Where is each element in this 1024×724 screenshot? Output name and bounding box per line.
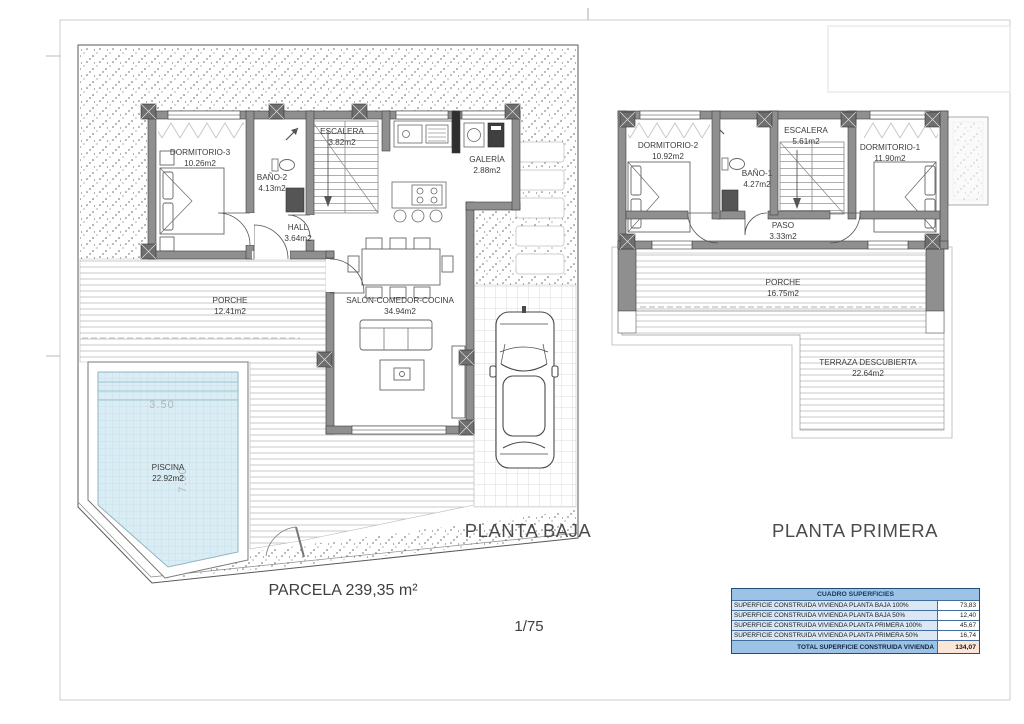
first-floor-plan: DORMITORIO-2 10.92m2 BAÑO-1 4.27m2 ESCAL…: [612, 111, 988, 438]
room-name-dormitorio-3: DORMITORIO-3: [170, 148, 231, 157]
room-name-hall: HALL: [288, 223, 309, 232]
room-name-salon: SALÓN-COMEDOR-COCINA: [346, 295, 454, 305]
room-area-paso: 3.33m2: [769, 232, 797, 241]
coffee-table: [380, 360, 424, 390]
room-area-escalera-gf: 3.82m2: [328, 138, 356, 147]
sofa: [360, 320, 432, 350]
ground-floor-plan: 3.50 7.00: [78, 45, 578, 583]
room-name-terraza: TERRAZA DESCUBIERTA: [819, 358, 917, 367]
table-total-row: TOTAL SUPERFICIE CONSTRUIDA VIVIENDA 134…: [732, 640, 979, 653]
galeria-appliances: [464, 123, 504, 147]
room-area-salon: 34.94m2: [384, 307, 416, 316]
balcony: [948, 117, 988, 205]
total-value: 134,07: [937, 641, 979, 653]
room-name-escalera-gf: ESCALERA: [320, 127, 364, 136]
table-row: SUPERFICIE CONSTRUIDA VIVIENDA PLANTA BA…: [732, 600, 979, 610]
kitchen-island: [392, 182, 446, 222]
row-label: SUPERFICIE CONSTRUIDA VIVIENDA PLANTA BA…: [732, 611, 937, 620]
walkway-slabs: [516, 142, 564, 274]
surfaces-table: CUADRO SUPERFICIES SUPERFICIE CONSTRUIDA…: [731, 588, 980, 654]
first-floor-title: PLANTA PRIMERA: [755, 520, 955, 542]
table-row: SUPERFICIE CONSTRUIDA VIVIENDA PLANTA PR…: [732, 620, 979, 630]
wardrobe-dormitorio-3: [158, 121, 244, 142]
room-name-porche-ff: PORCHE: [765, 278, 801, 287]
row-value: 12,40: [937, 611, 979, 620]
room-name-galeria: GALERÍA: [469, 154, 505, 164]
car-icon: [490, 306, 558, 468]
row-label: SUPERFICIE CONSTRUIDA VIVIENDA PLANTA BA…: [732, 601, 937, 610]
room-area-terraza: 22.64m2: [852, 369, 884, 378]
row-label: SUPERFICIE CONSTRUIDA VIVIENDA PLANTA PR…: [732, 621, 937, 630]
row-value: 16,74: [937, 631, 979, 640]
room-area-escalera-ff: 5.61m2: [792, 137, 820, 146]
room-area-galeria: 2.88m2: [473, 166, 501, 175]
room-area-porche-ff: 16.75m2: [767, 289, 799, 298]
room-name-paso: PASO: [772, 221, 794, 230]
bed-dormitorio-2: [628, 162, 690, 232]
table-row: SUPERFICIE CONSTRUIDA VIVIENDA PLANTA PR…: [732, 630, 979, 640]
room-area-dormitorio-1: 11.90m2: [874, 154, 906, 163]
room-name-bano-1: BAÑO-1: [742, 168, 773, 178]
title-block-placeholder: [828, 26, 1010, 92]
kitchen-counter: [394, 121, 452, 147]
garden-gravel-top: [80, 47, 576, 113]
room-name-escalera-ff: ESCALERA: [784, 126, 828, 135]
room-area-dormitorio-2: 10.92m2: [652, 152, 684, 161]
table-row: SUPERFICIE CONSTRUIDA VIVIENDA PLANTA BA…: [732, 610, 979, 620]
drawing-sheet: 3.50 7.00: [0, 0, 1024, 724]
room-name-dormitorio-2: DORMITORIO-2: [638, 141, 699, 150]
ground-floor-title: PLANTA BAJA: [428, 520, 628, 542]
room-area-dormitorio-3: 10.26m2: [184, 159, 216, 168]
row-label: SUPERFICIE CONSTRUIDA VIVIENDA PLANTA PR…: [732, 631, 937, 640]
wardrobe-dormitorio-2: [628, 121, 710, 142]
room-name-piscina: PISCINA: [152, 463, 185, 472]
room-area-porche-gf: 12.41m2: [214, 307, 246, 316]
row-value: 45,67: [937, 621, 979, 630]
room-area-piscina: 22.92m2: [152, 474, 184, 483]
room-name-bano-2: BAÑO-2: [257, 172, 288, 182]
drawing-scale: 1/75: [479, 618, 579, 635]
parcel-area-label: PARCELA 239,35 m²: [233, 582, 453, 600]
surfaces-table-title: CUADRO SUPERFICIES: [732, 589, 979, 600]
room-name-dormitorio-1: DORMITORIO-1: [860, 143, 921, 152]
pool-width-dim: 3.50: [149, 399, 174, 411]
room-name-porche-gf: PORCHE: [212, 296, 248, 305]
terraza-descubierta: [622, 311, 944, 430]
total-label: TOTAL SUPERFICIE CONSTRUIDA VIVIENDA: [732, 641, 937, 653]
row-value: 73,83: [937, 601, 979, 610]
stairs-first: [780, 142, 844, 214]
room-area-bano-2: 4.13m2: [258, 184, 286, 193]
room-area-bano-1: 4.27m2: [743, 180, 771, 189]
room-area-hall: 3.64m2: [284, 234, 312, 243]
bed-dormitorio-1: [874, 162, 936, 232]
garden-gravel-left: [80, 113, 148, 259]
